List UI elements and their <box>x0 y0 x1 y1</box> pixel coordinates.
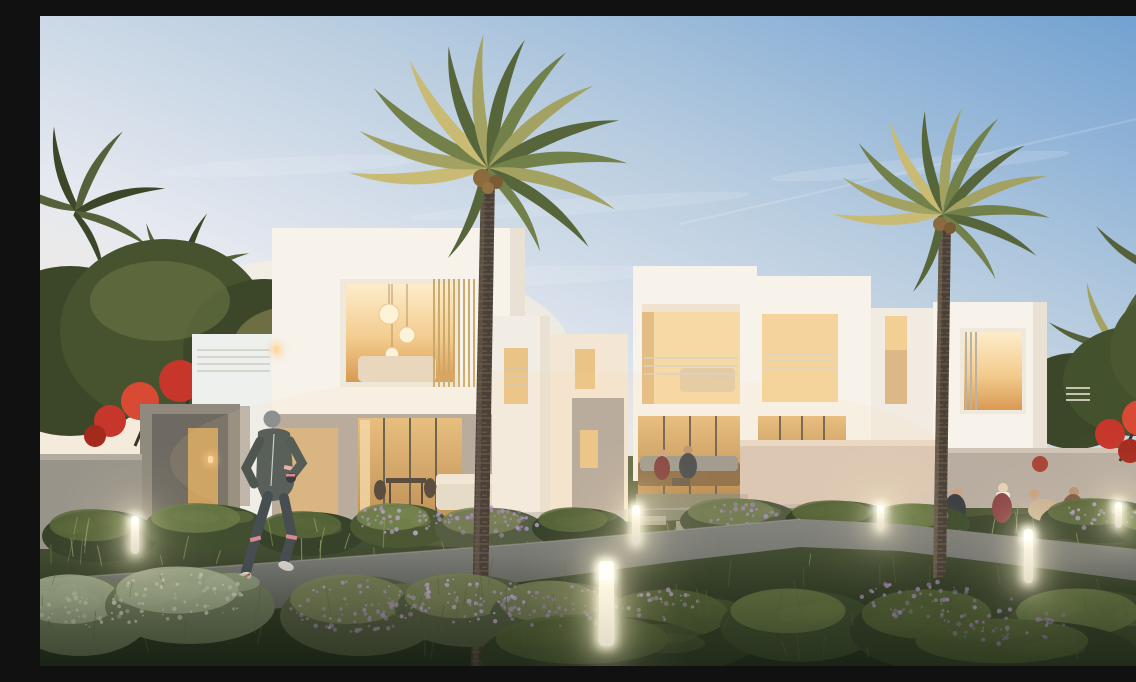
beanie <box>264 411 281 428</box>
architectural-render <box>40 16 1136 666</box>
bedroom-window <box>964 332 1022 410</box>
render-canvas <box>40 16 1136 666</box>
timber-slat-screen <box>434 279 474 387</box>
